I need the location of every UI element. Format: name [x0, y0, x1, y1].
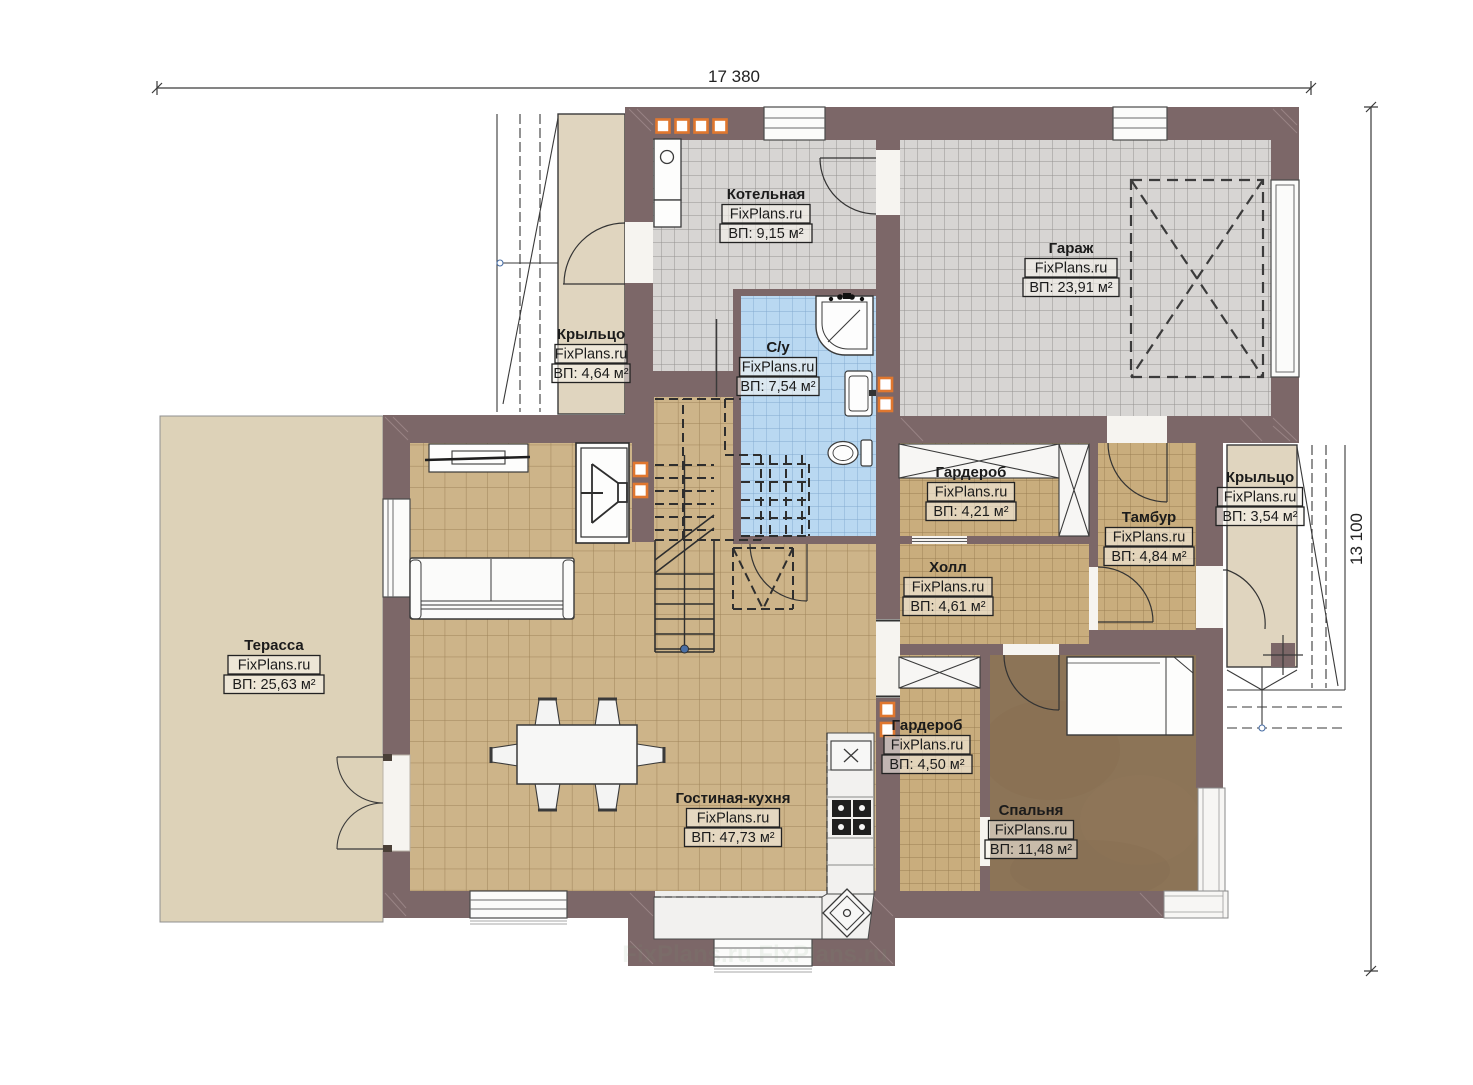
svg-text:Крыльцо: Крыльцо	[1226, 469, 1294, 486]
svg-text:FixPlans.ru: FixPlans.ru	[891, 738, 964, 754]
svg-text:FixPlans.ru FixPlans.ru: FixPlans.ru FixPlans.ru	[622, 941, 887, 968]
svg-text:С/у: С/у	[766, 339, 790, 356]
svg-text:ВП: 11,48 м²: ВП: 11,48 м²	[990, 842, 1072, 858]
svg-text:Гардероб: Гардероб	[936, 464, 1007, 481]
svg-text:FixPlans.ru: FixPlans.ru	[995, 823, 1068, 839]
svg-text:Спальня: Спальня	[999, 802, 1064, 819]
svg-text:ВП: 9,15 м²: ВП: 9,15 м²	[728, 226, 803, 242]
svg-text:ВП: 4,21 м²: ВП: 4,21 м²	[933, 504, 1008, 520]
svg-text:FixPlans.ru: FixPlans.ru	[1113, 530, 1186, 546]
svg-text:ВП: 4,84 м²: ВП: 4,84 м²	[1111, 549, 1186, 565]
svg-text:FixPlans.ru: FixPlans.ru	[1035, 261, 1108, 277]
svg-text:FixPlans.ru: FixPlans.ru	[238, 658, 311, 674]
svg-text:ВП: 4,50 м²: ВП: 4,50 м²	[889, 757, 964, 773]
svg-text:FixPlans.ru: FixPlans.ru	[912, 580, 985, 596]
svg-text:Котельная: Котельная	[727, 186, 806, 203]
svg-text:ВП: 23,91 м²: ВП: 23,91 м²	[1029, 280, 1112, 296]
svg-text:FixPlans.ru: FixPlans.ru	[1224, 490, 1297, 506]
svg-text:ВП: 3,54 м²: ВП: 3,54 м²	[1222, 509, 1297, 525]
svg-text:Терасса: Терасса	[244, 637, 304, 654]
svg-text:Гараж: Гараж	[1049, 240, 1094, 257]
svg-text:Крыльцо: Крыльцо	[557, 326, 625, 343]
svg-text:Холл: Холл	[929, 559, 967, 576]
svg-text:Тамбур: Тамбур	[1122, 509, 1176, 526]
svg-text:FixPlans.ru: FixPlans.ru	[555, 347, 628, 363]
svg-text:ВП: 4,64 м²: ВП: 4,64 м²	[553, 366, 628, 382]
svg-text:ВП: 25,63 м²: ВП: 25,63 м²	[232, 677, 315, 693]
svg-text:ВП: 47,73 м²: ВП: 47,73 м²	[691, 830, 774, 846]
svg-text:FixPlans.ru: FixPlans.ru	[730, 207, 803, 223]
svg-text:FixPlans.ru: FixPlans.ru	[697, 811, 770, 827]
svg-text:Гостиная-кухня: Гостиная-кухня	[676, 790, 791, 807]
svg-text:17 380: 17 380	[708, 67, 760, 86]
svg-text:FixPlans.ru: FixPlans.ru	[742, 360, 815, 376]
svg-text:ВП: 7,54 м²: ВП: 7,54 м²	[740, 379, 815, 395]
svg-text:Гардероб: Гардероб	[892, 717, 963, 734]
svg-text:13 100: 13 100	[1347, 513, 1366, 565]
svg-text:ВП: 4,61 м²: ВП: 4,61 м²	[910, 599, 985, 615]
svg-text:FixPlans.ru: FixPlans.ru	[935, 485, 1008, 501]
